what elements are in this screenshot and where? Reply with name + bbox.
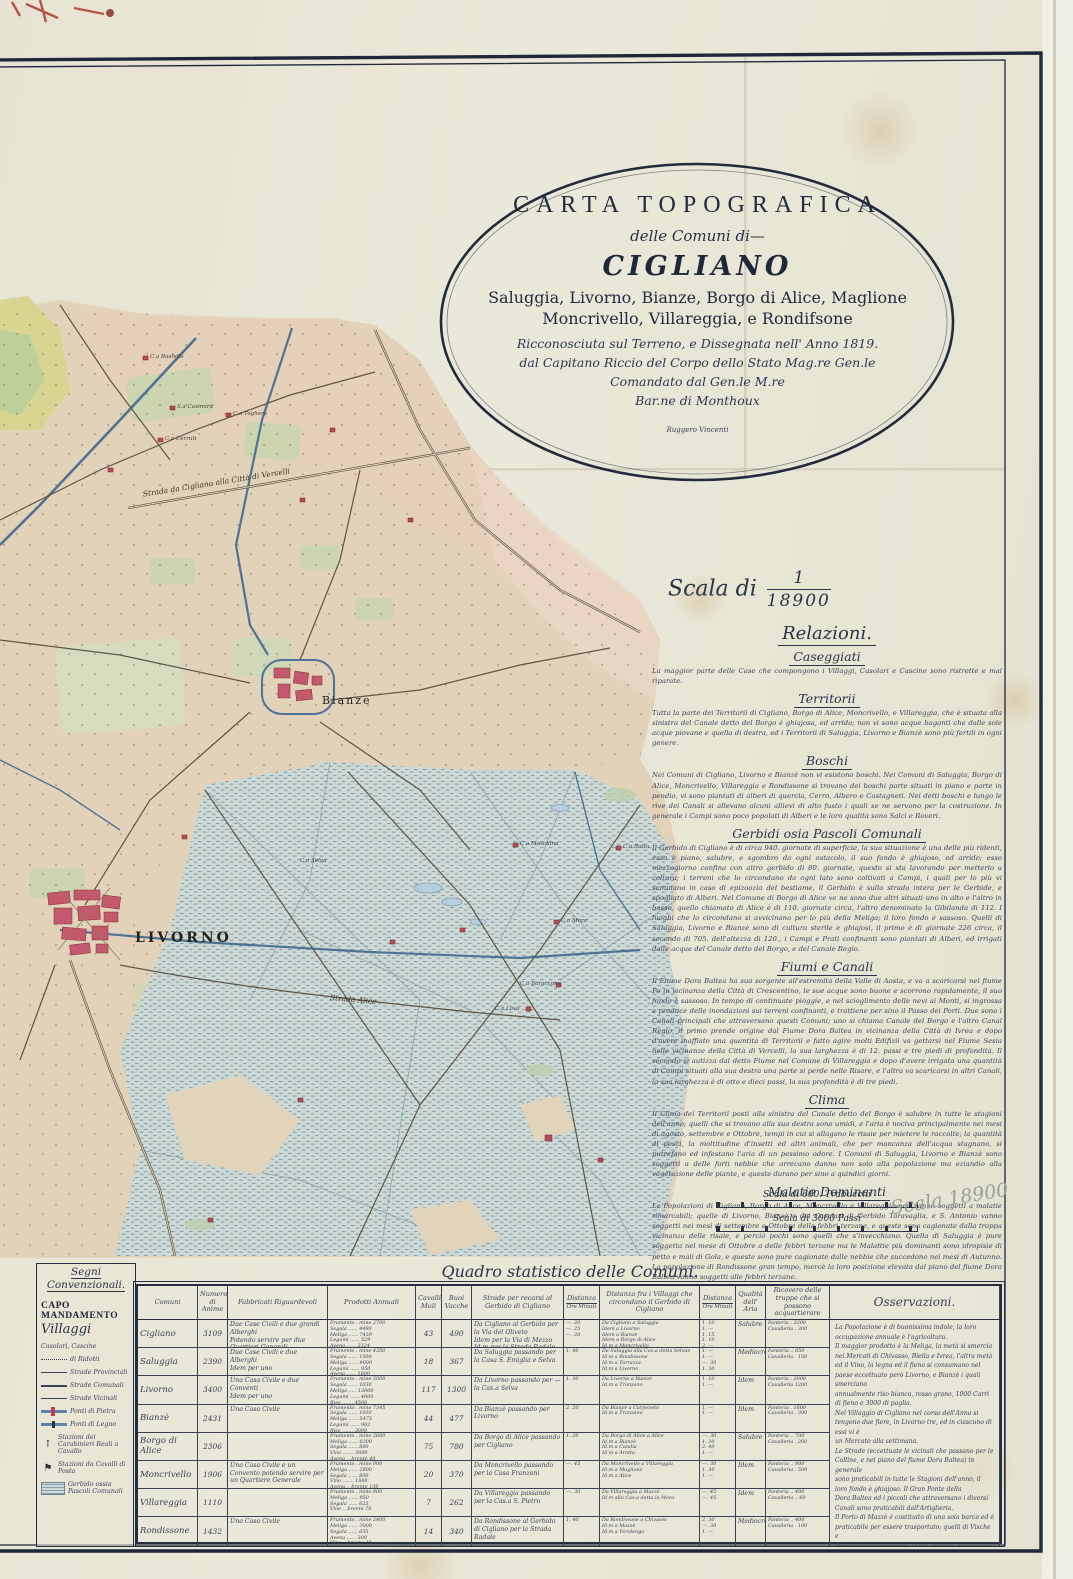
legend-item-ridotti: di Ridotti <box>41 1356 131 1363</box>
table-cell-anime: 1110 <box>198 1489 228 1517</box>
table-cell-buoi: 340 <box>442 1517 472 1545</box>
table-cell-dist2: 1. 10 1. — 1. 15 1. 10 2. — 1. 30 1. 30 … <box>700 1320 736 1348</box>
col-header-cavalli: Cavalli Muli <box>416 1286 442 1320</box>
corner-marks <box>12 0 114 22</box>
table-cell-dist2: —. 30 1. 30 1. — <box>700 1461 736 1489</box>
section-heading-fiumi: Fiumi e Canali <box>652 959 1002 974</box>
col-header-fabbricati: Fabbricati Riguardevoli <box>228 1286 328 1320</box>
legend-item-ponti-legno: Ponti di Legno <box>41 1421 131 1428</box>
map-label-cascina: S.a Casimira <box>177 404 213 410</box>
table-cell-cavalli: 7 <box>416 1489 442 1517</box>
table-cell-aria: Salubre <box>736 1320 766 1348</box>
table-cell-strade: Da Borgo di Alice passando per Cigliano <box>472 1433 564 1461</box>
table-cell-prodotti: Frumento . mine 2700 Segala ...... 4490 … <box>328 1320 416 1348</box>
table-cell-truppe: Fanteria .. 650 Cavalleria . 150 <box>766 1348 830 1376</box>
table-title: Quadro statistico delle Comuni. <box>140 1262 1000 1281</box>
table-cell-cavalli: 20 <box>416 1461 442 1489</box>
table-cell-strade: Da Cigliano al Gerbido per la Via del Ol… <box>472 1320 564 1348</box>
table-cell-buoi: 367 <box>442 1348 472 1376</box>
table-cell-fabbricati: Una Casa Civile <box>228 1517 328 1545</box>
map-title-communes-1: Saluggia, Livorno, Bianze, Borgo di Alic… <box>445 288 950 307</box>
post-horses-station-icon: ⚑ <box>41 1463 55 1474</box>
table-cell-dist2: —. 45 —. 45 <box>700 1489 736 1517</box>
col-header-strade: Strade per recarsi al Gerbido di Ciglian… <box>472 1286 564 1320</box>
legend-item-strade-comunali: Strade Comunali <box>41 1382 131 1389</box>
legend-item-cavalli-posta: ⚑Stazioni da Cavalli di Posta <box>41 1461 131 1475</box>
legend-item-casolari: Casolari, Cascine <box>41 1343 131 1350</box>
section-heading-clima: Clima <box>652 1092 1002 1107</box>
scale-label: Scala di <box>668 577 757 602</box>
map-title-author: dal Capitano Riccio del Corpo dello Stat… <box>445 355 950 370</box>
section-body-caseggiati: La maggior parte delle Case che compongo… <box>652 666 1002 686</box>
col-header-osservazioni: Osservazioni. <box>830 1286 1000 1320</box>
col-header-comuni: Comuni <box>138 1286 198 1320</box>
section-body-territorii: Tutta la parte dei Territorii di Ciglian… <box>652 708 1002 748</box>
map-title-command-1: Comandato dal Gen.le M.re <box>445 374 950 389</box>
road-line-swatch <box>41 1372 67 1373</box>
table-cell-villaggi: Da Villareggia a Mazzè Id.m alla Cas.a d… <box>600 1489 700 1517</box>
table-cell-prodotti: Frumento . mine 900 Meliga ...... 2600 S… <box>328 1461 416 1489</box>
map-label-cascina: C.a Baraccone <box>520 981 561 987</box>
col-header-prodotti: Prodotti Annuali <box>328 1286 416 1320</box>
table-cell-truppe: Fanteria . 1600 Cavalleria . 300 <box>766 1405 830 1433</box>
section-body-gerbidi: Il Gerbido di Cigliano è di circa 940. g… <box>652 843 1002 954</box>
scale-bar-trabucchi <box>716 1202 918 1208</box>
legend-heading: Segni Convenzionali. <box>41 1266 131 1291</box>
table-cell-prodotti: Frumento . mine 7345 Segala ...... 1030 … <box>328 1405 416 1433</box>
table-cell-prodotti: Frumento . mine 800 Meliga ...... 950 Se… <box>328 1489 416 1517</box>
table-cell-comune: Bianzè <box>138 1405 198 1433</box>
col-header-distanza-2: Distanza OreMinuti <box>700 1286 736 1320</box>
section-body-fiumi: Il Fiume Dora Baltea ha sua sorgente all… <box>652 976 1002 1087</box>
scale-bar-passi <box>716 1226 918 1232</box>
table-cell-villaggi: Da Saluggia alla Cas.a detta Selvan Id.m… <box>600 1348 700 1376</box>
table-cell-cavalli: 117 <box>416 1376 442 1404</box>
map-sheet: CARTA TOPOGRAFICA delle Comuni di— CIGLI… <box>0 0 1073 1579</box>
carabinieri-station-icon: ↑ <box>41 1439 55 1450</box>
table-cell-dist2: 2. 30 —. 30 1. — <box>700 1517 736 1545</box>
table-cell-dist2: 1. — 1. — <box>700 1405 736 1433</box>
table-cell-dist2: 1. 10 1. — <box>700 1376 736 1404</box>
legend-item-gerbido: Gerbido ossia Pascoli Comunali <box>41 1481 131 1495</box>
legend-capo-mandamento: CAPO MANDAMENTO <box>41 1301 131 1321</box>
table-cell-strade: Da Livorno passando per — la Cas.a Selva <box>472 1376 564 1404</box>
map-label-cascina: C.a Cerruti <box>165 436 197 442</box>
table-cell-dist1: 2. 20 <box>564 1405 600 1433</box>
map-subtitle: delle Comuni di— <box>445 227 950 245</box>
stone-bridge-icon <box>41 1410 67 1413</box>
table-cell-dist1: 1. 20 <box>564 1433 600 1461</box>
table-cell-anime: 2390 <box>198 1348 228 1376</box>
table-cell-cavalli: 14 <box>416 1517 442 1545</box>
gerbido-area <box>115 762 690 1256</box>
relazioni-block: Relazioni. Caseggiati La maggior parte d… <box>652 623 1002 1282</box>
table-cell-comune: Moncrivello <box>138 1461 198 1489</box>
legend-box: Segni Convenzionali. CAPO MANDAMENTO Vil… <box>36 1263 136 1547</box>
table-cell-villaggi: Da Borgo di Alice a Alice Id.m a Bianzè … <box>600 1433 700 1461</box>
title-cartouche: CARTA TOPOGRAFICA delle Comuni di— CIGLI… <box>445 178 950 478</box>
table-cell-strade: Da Moncrivello passando per la Casa Fran… <box>472 1461 564 1489</box>
table-cell-buoi: 780 <box>442 1433 472 1461</box>
table-cell-dist2: —. 30 1. 30 2. 40 1. — <box>700 1433 736 1461</box>
table-cell-truppe: Fanteria .. 400 Cavalleria .. 60 <box>766 1489 830 1517</box>
section-heading-caseggiati: Caseggiati <box>652 649 1002 664</box>
col-header-distanza-1: Distanza OreMinuti <box>564 1286 600 1320</box>
table-cell-truppe: Fanteria .. 400 Cavalleria . 100 <box>766 1517 830 1545</box>
table-cell-buoi: 370 <box>442 1461 472 1489</box>
statistical-table: Comuni Numero di Anime Fabbricati Riguar… <box>136 1284 1002 1544</box>
table-cell-cavalli: 43 <box>416 1320 442 1348</box>
table-cell-anime: 3109 <box>198 1320 228 1348</box>
table-cell-prodotti: Frumento . mine 5000 Segala ...... 1030 … <box>328 1376 416 1404</box>
table-cell-dist1: 1. 40 <box>564 1517 600 1545</box>
scale-fraction: 118900 <box>767 568 831 611</box>
table-cell-aria: Idem <box>736 1461 766 1489</box>
table-cell-villaggi: Da Livorno a Bianzè Id.m a Tronzano <box>600 1376 700 1404</box>
table-cell-fabbricati: Due Case Civili e due grandi Alberghi Po… <box>228 1320 328 1348</box>
map-label-cascina: C.a Mora <box>561 918 587 924</box>
table-cell-comune: Rondissone <box>138 1517 198 1545</box>
table-cell-fabbricati: Una Casa Civile <box>228 1405 328 1433</box>
table-cell-fabbricati <box>228 1489 328 1517</box>
scale-bar-passi-label: Scala di 3000 Passi <box>712 1214 922 1224</box>
legend-item-carabinieri: ↑Stazioni dei Carabinieri Reali a Cavall… <box>41 1434 131 1455</box>
table-cell-fabbricati: Una Casa Civile e un Convento potendo se… <box>228 1461 328 1489</box>
table-cell-dist1: —. 20 —. 25 —. 20 <box>564 1320 600 1348</box>
table-cell-villaggi: Da Rondissone a Chivasso Id.m a Mazzè Id… <box>600 1517 700 1545</box>
legend-item-strade-provinciali: Strade Provinciali <box>41 1369 131 1376</box>
table-cell-strade: Da Bianzè passando per Livorno <box>472 1405 564 1433</box>
map-label-livorno: LIVORNO <box>135 930 232 946</box>
map-label-bianze: Bianze <box>322 694 372 707</box>
map-label-cascina: C.a Lova <box>495 1006 520 1012</box>
table-cell-strade: Da Saluggia passando per la Casa S. Emig… <box>472 1348 564 1376</box>
table-cell-villaggi: Da Moncrivello a Villareggia Id.m a Magl… <box>600 1461 700 1489</box>
table-cell-aria: Salubre <box>736 1433 766 1461</box>
col-header-aria: Qualità dell' Aria <box>736 1286 766 1320</box>
map-label-cascina: C.a Selva <box>300 858 326 864</box>
section-heading-boschi: Boschi <box>652 753 1002 768</box>
table-cell-dist1: —. 45 <box>564 1461 600 1489</box>
table-cell-truppe: Fanteria .. 900 Cavalleria . 500 <box>766 1461 830 1489</box>
col-header-truppe: Ricovero delle truppe che si possono acq… <box>766 1286 830 1320</box>
legend-item-strade-vicinali: Strade Vicinali <box>41 1395 131 1402</box>
table-cell-dist1: —. 30 <box>564 1489 600 1517</box>
table-cell-anime: 1906 <box>198 1461 228 1489</box>
table-cell-dist1: 1. 40 <box>564 1348 600 1376</box>
map-label-cascina: C.a Rotta <box>623 844 649 850</box>
table-cell-fabbricati <box>228 1433 328 1461</box>
col-header-villaggi: Distanza fra i Villaggi che circondano i… <box>600 1286 700 1320</box>
table-cell-villaggi: Da Bianzè a Carpeneto Id.m a Tronzano <box>600 1405 700 1433</box>
paper-edge <box>1042 0 1073 1579</box>
table-cell-buoi: 490 <box>442 1320 472 1348</box>
table-cell-prodotti: Frumento . mine 2400 Meliga ...... 3000 … <box>328 1517 416 1545</box>
legend-villaggi: Villaggi <box>41 1322 131 1337</box>
table-cell-prodotti: Frumento . mine 4350 Segala ...... 1500 … <box>328 1348 416 1376</box>
table-cell-prodotti: Frumento . mine 2600 Meliga ...... 6300 … <box>328 1433 416 1461</box>
col-header-anime: Numero di Anime <box>198 1286 228 1320</box>
relazioni-heading: Relazioni. <box>652 623 1002 644</box>
table-cell-truppe: Fanteria . 3200 Cavalleria . 300 <box>766 1320 830 1348</box>
road-line-swatch <box>41 1398 67 1399</box>
table-cell-aria: Idem <box>736 1489 766 1517</box>
table-cell-fabbricati: Due Case Civili e due Alberghi Idem per … <box>228 1348 328 1376</box>
table-cell-anime: 2431 <box>198 1405 228 1433</box>
table-cell-comune: Livorno <box>138 1376 198 1404</box>
table-cell-strade: Da Villareggia passando per la Cas.a S. … <box>472 1489 564 1517</box>
table-cell-aria: Idem <box>736 1405 766 1433</box>
map-title-communes-2: Moncrivello, Villareggia, e Rondifsone <box>445 309 950 328</box>
map-title-city: CIGLIANO <box>445 251 950 282</box>
table-cell-anime: 2306 <box>198 1433 228 1461</box>
legend-item-ponti-pietra: Ponti di Pietra <box>41 1408 131 1415</box>
road-line-swatch <box>41 1385 67 1387</box>
table-cell-cavalli: 18 <box>416 1348 442 1376</box>
table-cell-comune: Borgo di Alice <box>138 1433 198 1461</box>
table-cell-aria: Idem <box>736 1376 766 1404</box>
map-label-cascina: C.a Moschina <box>520 841 558 847</box>
table-cell-buoi: 262 <box>442 1489 472 1517</box>
table-cell-aria: Mediocre <box>736 1517 766 1545</box>
table-cell-cavalli: 44 <box>416 1405 442 1433</box>
section-heading-gerbidi: Gerbidi osia Pascoli Comunali <box>652 826 1002 841</box>
table-cell-cavalli: 75 <box>416 1433 442 1461</box>
engraver-signature: Ruggero Vincenti <box>445 426 950 434</box>
table-cell-strade: Da Rondissone al Gerbido di Cigliano per… <box>472 1517 564 1545</box>
table-cell-aria: Mediocre <box>736 1348 766 1376</box>
scale-statement: Scala di118900 <box>668 568 831 611</box>
table-cell-truppe: Fanteria .. 700 Cavalleria . 200 <box>766 1433 830 1461</box>
table-cell-buoi: 477 <box>442 1405 472 1433</box>
table-cell-anime: 1432 <box>198 1517 228 1545</box>
table-cell-comune: Saluggia <box>138 1348 198 1376</box>
dotted-line-swatch <box>41 1359 67 1360</box>
table-cell-fabbricati: Una Casa Civile e due Conventi Idem per … <box>228 1376 328 1404</box>
table-cell-villaggi: Da Cigliano a Saluggia Idem a Livorno Id… <box>600 1320 700 1348</box>
map-title-survey-note: Ricconosciuta sul Terreno, e Dissegnata … <box>445 336 950 351</box>
table-cell-comune: Cigliano <box>138 1320 198 1348</box>
osservazioni-text: La Popolazione è di buonissima indole, l… <box>830 1320 1000 1546</box>
table-cell-buoi: 1300 <box>442 1376 472 1404</box>
table-cell-dist1: 1. 30 <box>564 1376 600 1404</box>
table-cell-dist2: 1. — 1. — —. 30 1. 30 <box>700 1348 736 1376</box>
table-cell-truppe: Fanteria . 2000 Cavalleria 1200 <box>766 1376 830 1404</box>
section-body-boschi: Nei Comuni di Cigliano, Livorno e Bianzè… <box>652 770 1002 820</box>
col-header-buoi: Buoi Vacche <box>442 1286 472 1320</box>
section-heading-territorii: Territorii <box>652 691 1002 706</box>
map-label-cascina: C.a Teghera <box>233 411 267 417</box>
gerbido-pattern-swatch <box>41 1482 65 1495</box>
table-cell-comune: Villareggia <box>138 1489 198 1517</box>
table-cell-anime: 3400 <box>198 1376 228 1404</box>
wood-bridge-icon <box>41 1423 67 1426</box>
section-body-clima: Il Clima dei Territorii posti alla sinis… <box>652 1109 1002 1180</box>
map-title-command-2: Bar.ne di Monthoux <box>445 393 950 408</box>
map-title: CARTA TOPOGRAFICA <box>445 192 950 219</box>
map-label-cascina: C.a Bastella <box>150 354 184 360</box>
